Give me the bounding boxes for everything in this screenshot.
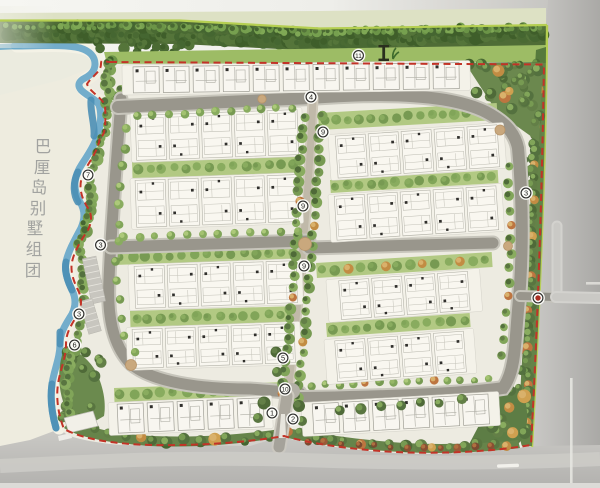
svg-text:7: 7 — [86, 171, 90, 180]
svg-text:团: 团 — [25, 262, 42, 280]
svg-text:3: 3 — [524, 189, 528, 198]
svg-text:墅: 墅 — [27, 219, 44, 238]
svg-text:4: 4 — [309, 93, 313, 102]
svg-text:11: 11 — [355, 53, 362, 60]
svg-text:1: 1 — [270, 409, 274, 418]
svg-text:5: 5 — [281, 354, 285, 363]
svg-text:巴: 巴 — [35, 138, 52, 156]
svg-text:组: 组 — [26, 240, 43, 259]
svg-text:10: 10 — [281, 387, 289, 394]
svg-text:3: 3 — [98, 241, 102, 250]
svg-text:别: 别 — [30, 199, 47, 218]
svg-text:2: 2 — [291, 415, 295, 424]
svg-text:6: 6 — [72, 341, 76, 350]
svg-text:厘: 厘 — [34, 159, 51, 177]
svg-text:岛: 岛 — [31, 178, 48, 197]
svg-text:3: 3 — [77, 310, 81, 319]
svg-text:9: 9 — [302, 262, 306, 271]
svg-text:9: 9 — [321, 128, 325, 137]
svg-text:9: 9 — [301, 202, 305, 211]
